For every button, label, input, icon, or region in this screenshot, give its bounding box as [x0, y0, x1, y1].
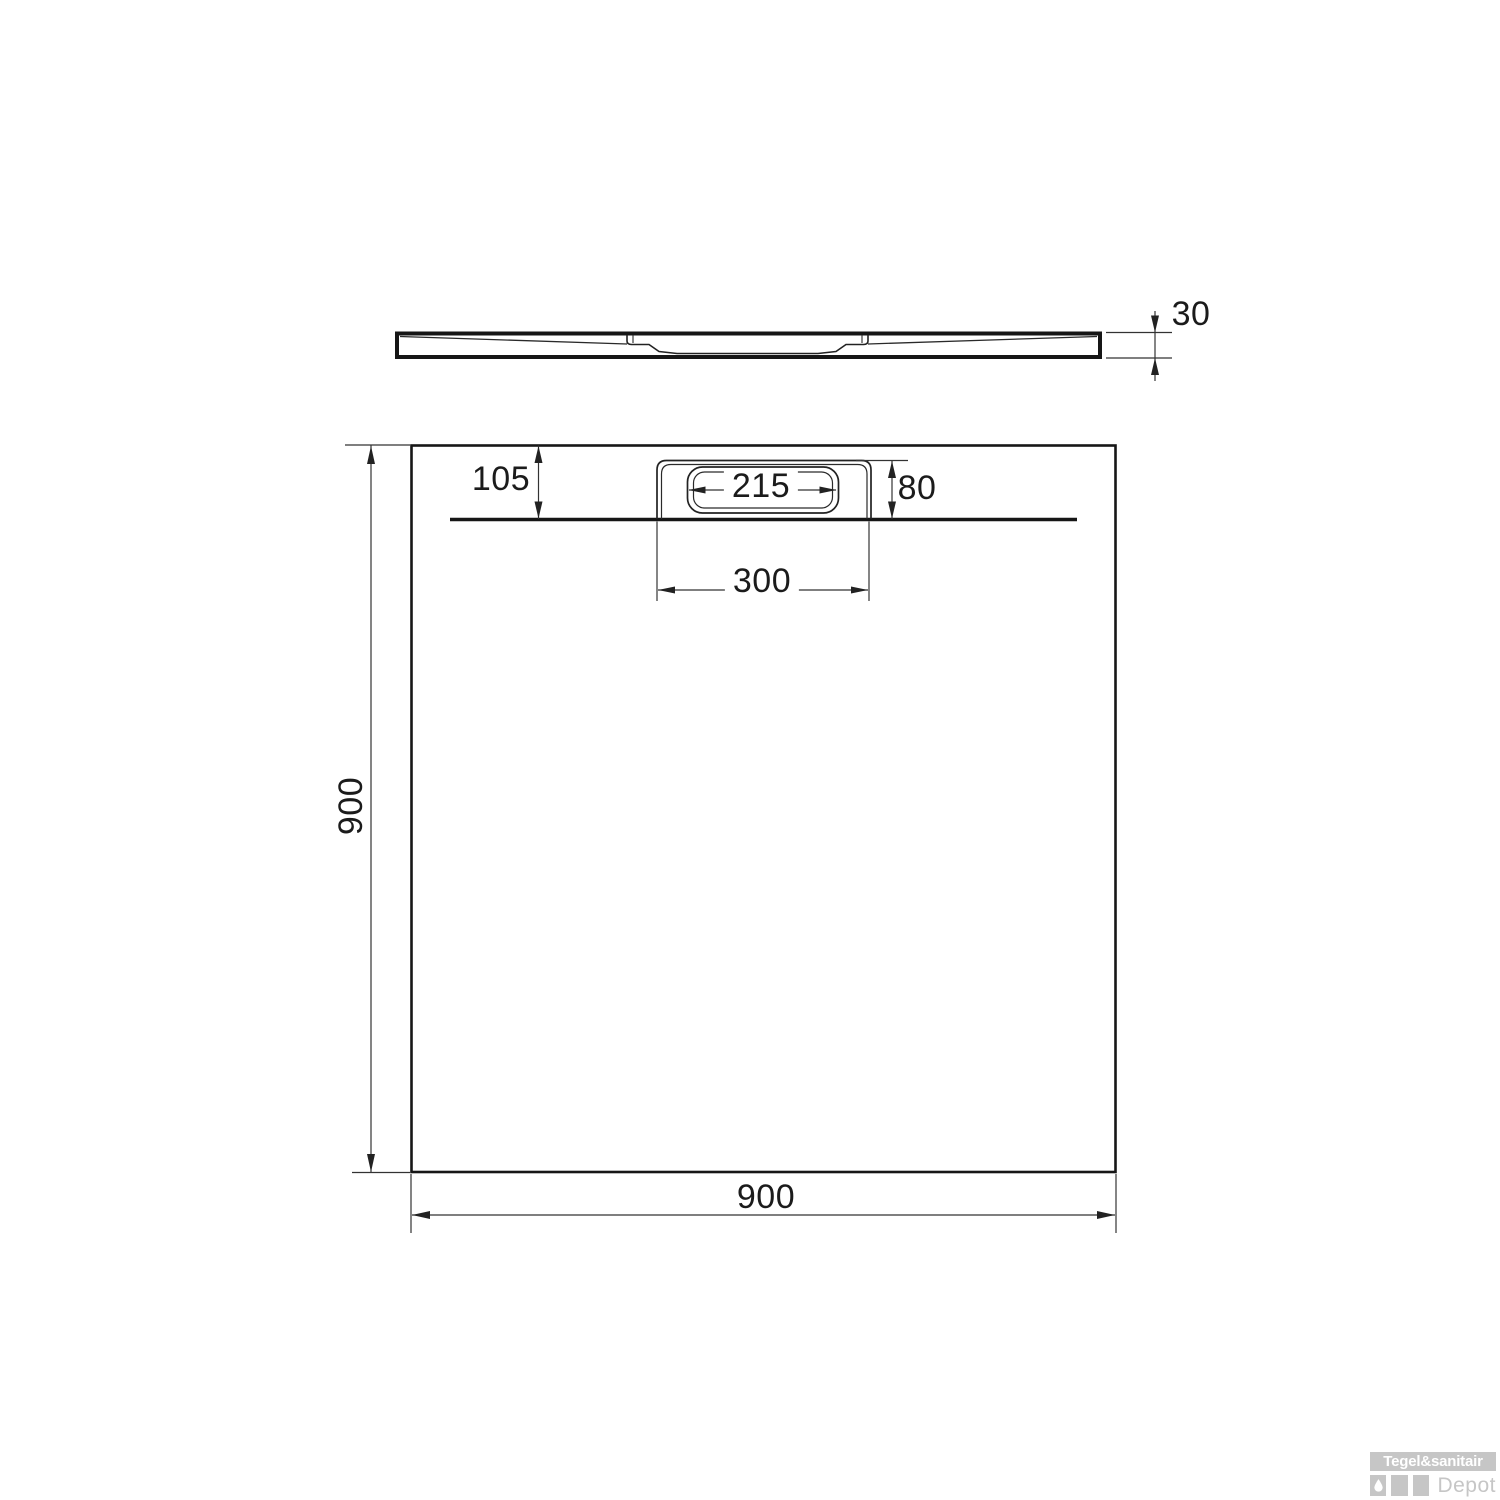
brand-name: Tegel&sanitair: [1383, 1454, 1482, 1469]
dim-105-label: 105: [472, 462, 530, 496]
brand-square-2: [1391, 1475, 1407, 1496]
brand-square-3: [1413, 1475, 1429, 1496]
water-drop-icon: [1373, 1478, 1384, 1493]
brand-depot: Depot: [1437, 1475, 1496, 1496]
dim-900-left-label: 900: [334, 777, 368, 835]
side-view: [397, 334, 1100, 358]
dim-80-label: 80: [898, 471, 937, 505]
brand-watermark: Tegel&sanitair Depot: [1370, 1452, 1496, 1496]
dim-900-bottom-label: 900: [737, 1180, 795, 1214]
top-view-outline: [412, 446, 1116, 1173]
dimension-30: [1106, 311, 1172, 381]
drawing-linework: [0, 0, 1500, 1500]
top-view: [412, 446, 1116, 1173]
dim-30-label: 30: [1172, 297, 1211, 331]
technical-drawing-page: 30 105 215 80 300 900 900 Tegel&sanitair…: [0, 0, 1500, 1500]
dim-215-label: 215: [724, 469, 798, 503]
dim-300-label: 300: [725, 564, 799, 598]
brand-bar: Tegel&sanitair: [1370, 1452, 1496, 1471]
brand-row: Depot: [1370, 1475, 1496, 1496]
brand-square-1: [1370, 1475, 1386, 1496]
